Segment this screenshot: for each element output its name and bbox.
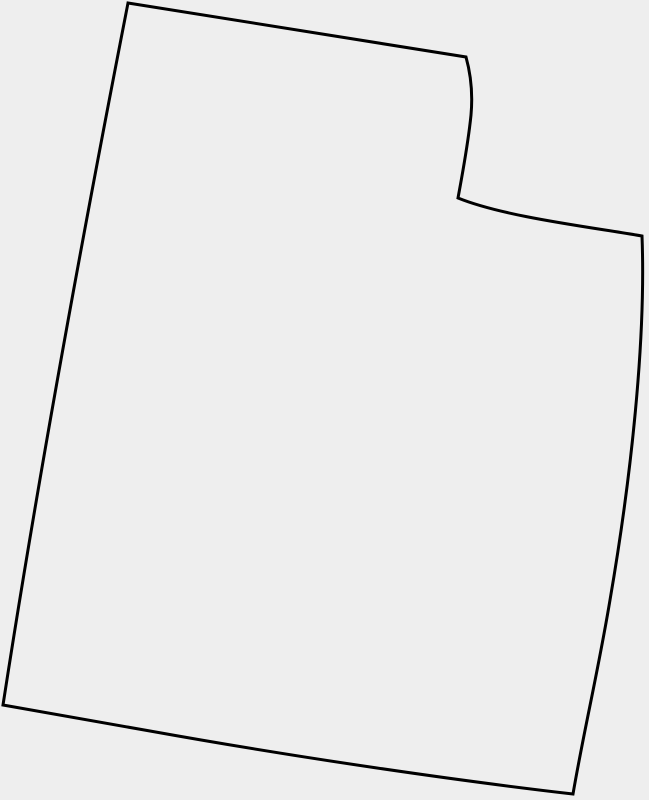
utah-outline-map [0,0,649,800]
map-canvas [0,0,649,800]
